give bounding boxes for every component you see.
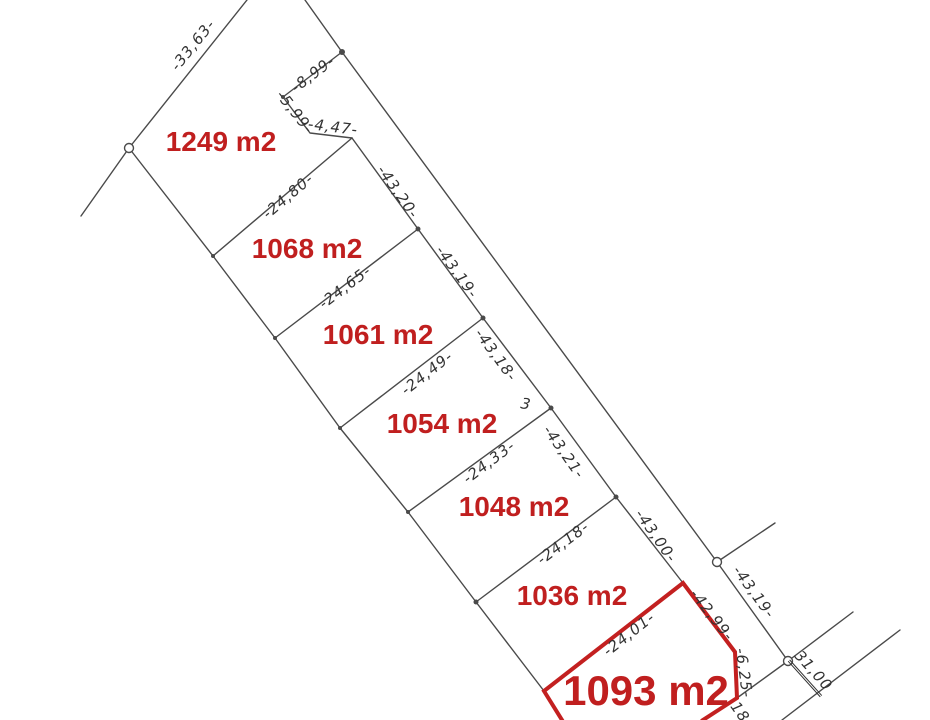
northwest-boundary [81,0,247,216]
spur-at-circle-1 [717,523,775,562]
survey-point-dot [211,254,215,258]
notch-lines [283,52,352,138]
survey-point-dot [481,316,486,321]
survey-point-dot [338,426,342,430]
separator-1054-1048 [408,408,551,512]
survey-point-dot [614,495,619,500]
survey-point-dot [406,510,410,514]
survey-point-dot [339,49,345,55]
separator-1048-1036 [476,497,616,602]
survey-point-dot [273,336,277,340]
survey-point-dot [416,227,421,232]
survey-point-dot [281,95,285,99]
boundary-lines-svg [0,0,930,720]
survey-point-circle [784,657,793,666]
survey-point-dot [549,406,554,411]
survey-point-circle [125,144,134,153]
west-boundary [129,148,544,691]
survey-point-dot [474,600,479,605]
separator-1068-1061 [275,229,418,338]
survey-point-circle [713,558,722,567]
separator-1249-1068 [213,138,352,256]
spur-at-circle-2 [788,612,853,661]
separator-1061-1054 [340,318,483,428]
road-west-line [305,0,788,698]
parcels-east-line [352,138,683,583]
red-parcel-outline [544,583,737,720]
cadastral-survey-sketch: -33,63--8,99--5,99--4,47--24,80--43,20--… [0,0,930,720]
east-side-lot-line [782,630,900,720]
